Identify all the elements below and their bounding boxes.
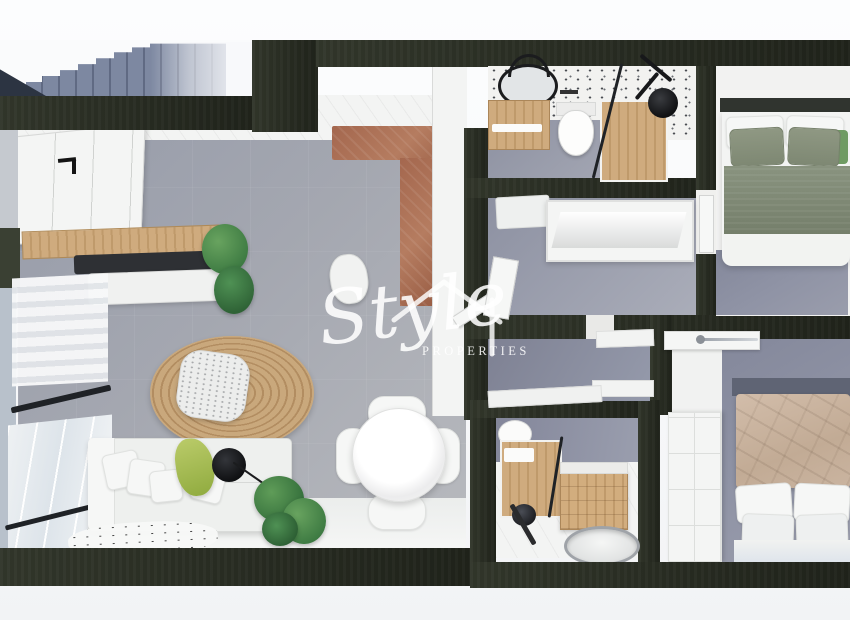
bed1-sage-pillow <box>729 127 785 168</box>
vanity2-chest <box>560 470 628 530</box>
wall-bathroom2-left <box>470 400 496 562</box>
bed2-quilted-blanket <box>736 394 850 488</box>
bed2-duvet <box>734 540 850 562</box>
speckled-pouf <box>174 347 253 424</box>
wall-top <box>316 40 850 67</box>
cabinet-handle <box>72 160 76 174</box>
bench-seat <box>87 269 230 306</box>
hall-bench <box>495 195 551 230</box>
bed1-headboard <box>720 98 850 112</box>
plant-icon <box>202 224 248 274</box>
side-table-black <box>212 448 246 482</box>
wall-under-stairs <box>0 96 256 130</box>
wall-bathroom2-right <box>638 400 660 562</box>
hall-wardrobe-interior <box>552 212 687 248</box>
staircase-landing <box>26 42 252 96</box>
oval-basin-icon <box>564 526 640 566</box>
vanity2-top <box>560 462 628 474</box>
plant-icon <box>262 512 298 546</box>
bed1-duvet <box>724 234 850 266</box>
vanity1-towel <box>492 124 542 132</box>
wall-bathroom1-bottom <box>464 178 708 198</box>
bed1-blanket <box>724 166 850 236</box>
door-handle-icon <box>696 335 705 344</box>
bed1-sage-pillow <box>787 127 841 168</box>
shower2-towel <box>504 448 534 462</box>
door-handle-icon <box>700 338 758 341</box>
door-bedroom1 <box>699 195 714 253</box>
curtains <box>12 273 108 386</box>
shower-lamp-icon <box>648 88 678 118</box>
exterior-sliver <box>0 128 18 230</box>
nook-shelf <box>596 329 655 348</box>
floor-plan-render: Style PROPERTIES <box>0 0 850 620</box>
kitchen-wall-face <box>432 66 467 416</box>
bedroom2-wardrobe <box>668 412 722 562</box>
wall-bottom-left <box>0 548 470 586</box>
watermark-caps: PROPERTIES <box>422 344 552 359</box>
wall-button <box>560 90 578 94</box>
wall-corner-block <box>252 40 318 132</box>
toilet-icon <box>558 110 594 156</box>
dining-table <box>352 408 446 502</box>
wall-bottom-right <box>470 562 850 588</box>
plant-icon <box>214 266 254 314</box>
